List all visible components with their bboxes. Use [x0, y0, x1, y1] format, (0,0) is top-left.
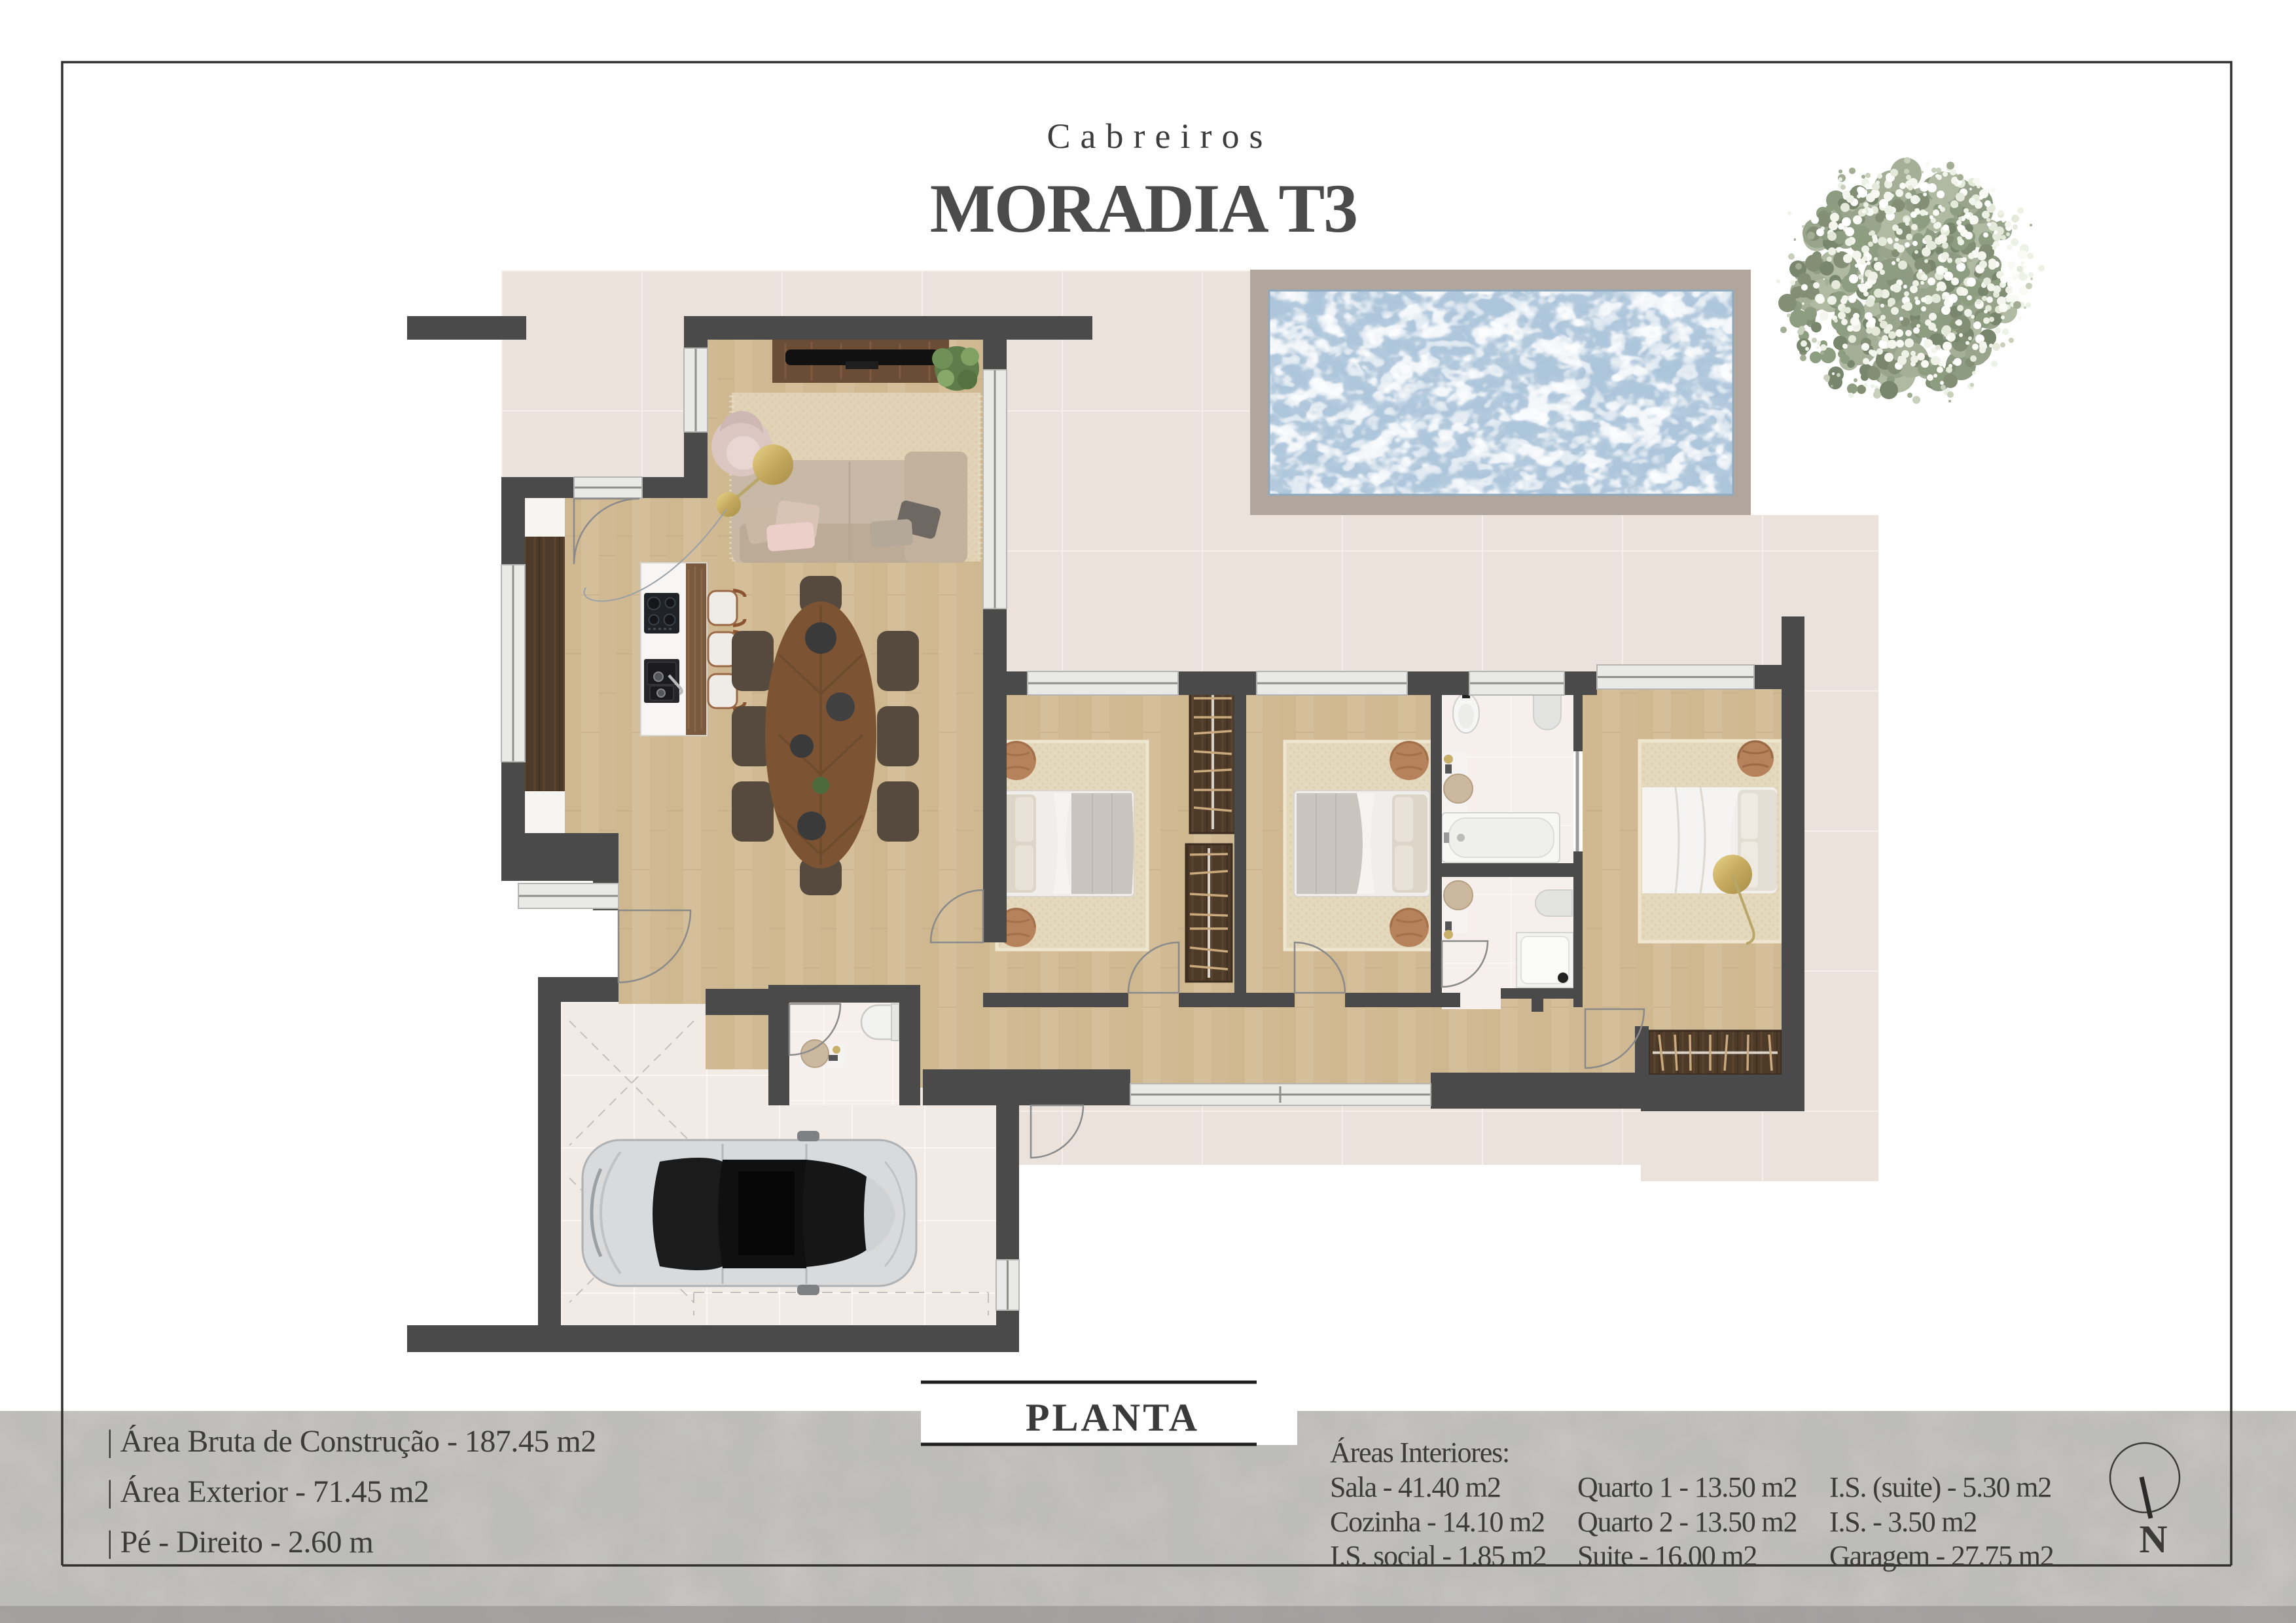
svg-text:MORADIA T3: MORADIA T3: [930, 170, 1357, 247]
svg-text:Quarto 1 - 13.50 m2: Quarto 1 - 13.50 m2: [1577, 1471, 1797, 1503]
svg-text:I.S. social - 1.85 m2: I.S. social - 1.85 m2: [1330, 1540, 1546, 1572]
svg-text:Cozinha - 14.10 m2: Cozinha - 14.10 m2: [1330, 1506, 1545, 1538]
svg-text:I.S. - 3.50 m2: I.S. - 3.50 m2: [1829, 1506, 1977, 1538]
svg-text:Suite - 16.00 m2: Suite - 16.00 m2: [1577, 1540, 1757, 1572]
svg-text:PLANTA: PLANTA: [1026, 1396, 1200, 1439]
svg-text:| Área Exterior - 71.45 m2: | Área Exterior - 71.45 m2: [107, 1474, 429, 1509]
svg-text:I.S. (suite) - 5.30 m2: I.S. (suite) - 5.30 m2: [1829, 1471, 2051, 1503]
svg-text:Cabreiros: Cabreiros: [1047, 116, 1273, 156]
svg-text:| Área Bruta de Construção - 1: | Área Bruta de Construção - 187.45 m2: [107, 1424, 596, 1459]
svg-text:Sala - 41.40 m2: Sala - 41.40 m2: [1330, 1471, 1501, 1503]
svg-text:Garagem - 27.75 m2: Garagem - 27.75 m2: [1829, 1540, 2054, 1572]
svg-text:N: N: [2139, 1518, 2167, 1561]
svg-text:Áreas Interiores:: Áreas Interiores:: [1330, 1436, 1509, 1469]
svg-text:Quarto 2 - 13.50 m2: Quarto 2 - 13.50 m2: [1577, 1506, 1797, 1538]
svg-text:| Pé - Direito - 2.60 m: | Pé - Direito - 2.60 m: [107, 1525, 374, 1560]
